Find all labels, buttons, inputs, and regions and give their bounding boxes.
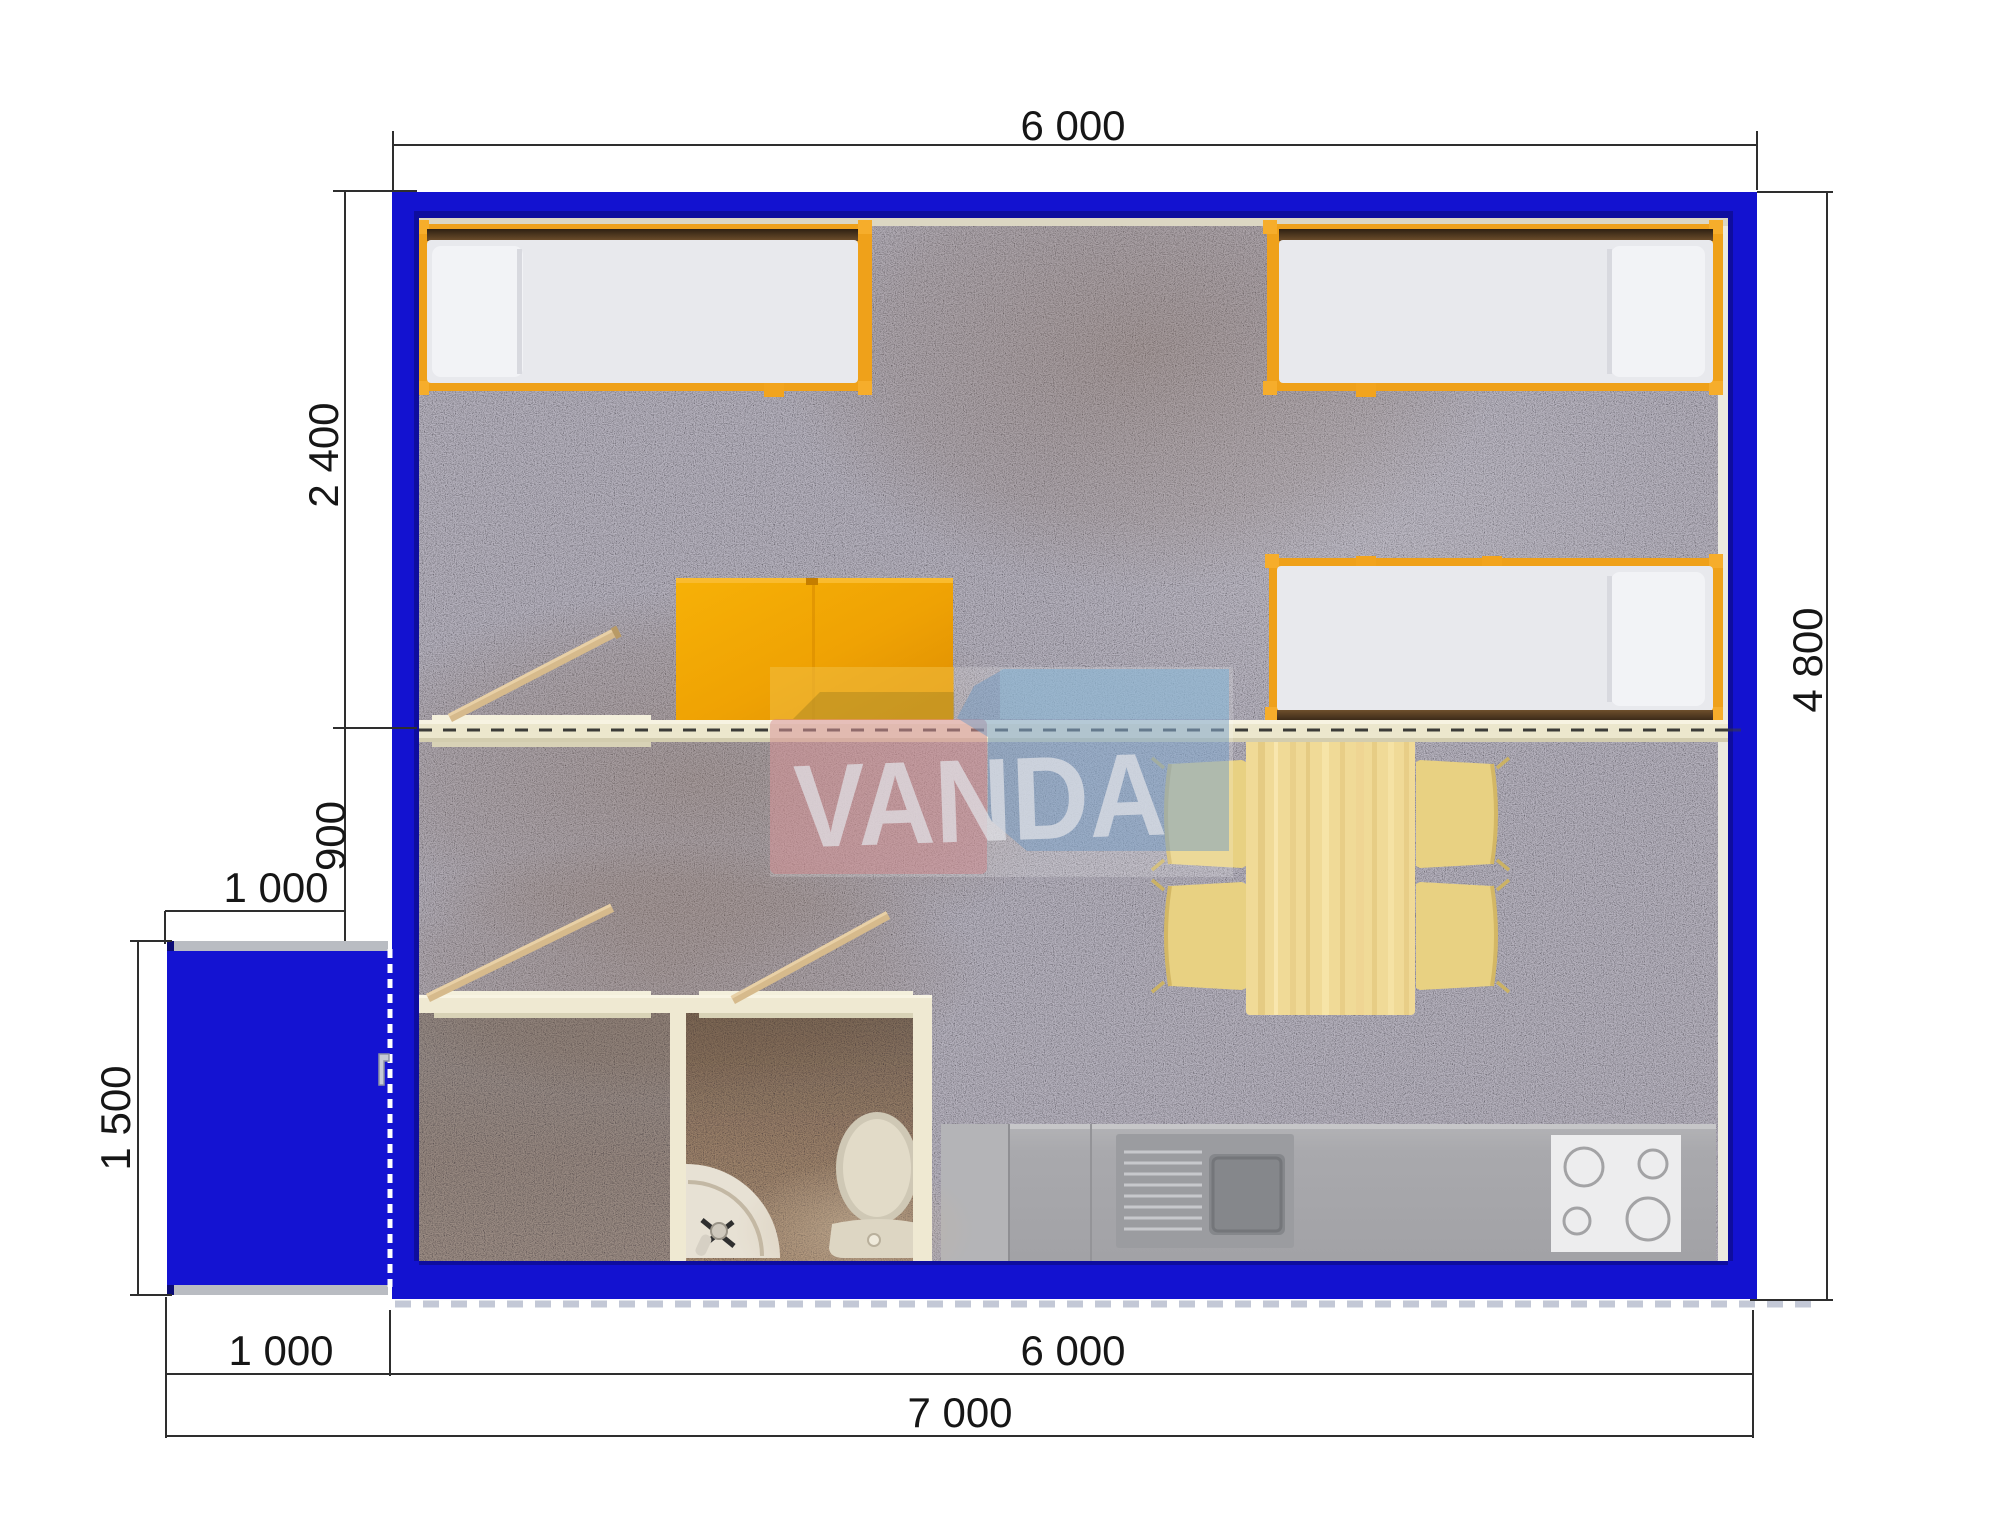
svg-text:4 800: 4 800 (1784, 607, 1831, 712)
svg-text:6 000: 6 000 (1020, 1327, 1125, 1374)
svg-text:2 400: 2 400 (300, 402, 347, 507)
svg-text:1 000: 1 000 (228, 1327, 333, 1374)
svg-text:900: 900 (307, 801, 354, 871)
svg-text:1 000: 1 000 (223, 864, 328, 911)
svg-text:VANDA: VANDA (792, 729, 1168, 874)
svg-text:1 500: 1 500 (92, 1065, 139, 1170)
svg-text:7 000: 7 000 (907, 1389, 1012, 1436)
svg-text:6 000: 6 000 (1020, 102, 1125, 149)
